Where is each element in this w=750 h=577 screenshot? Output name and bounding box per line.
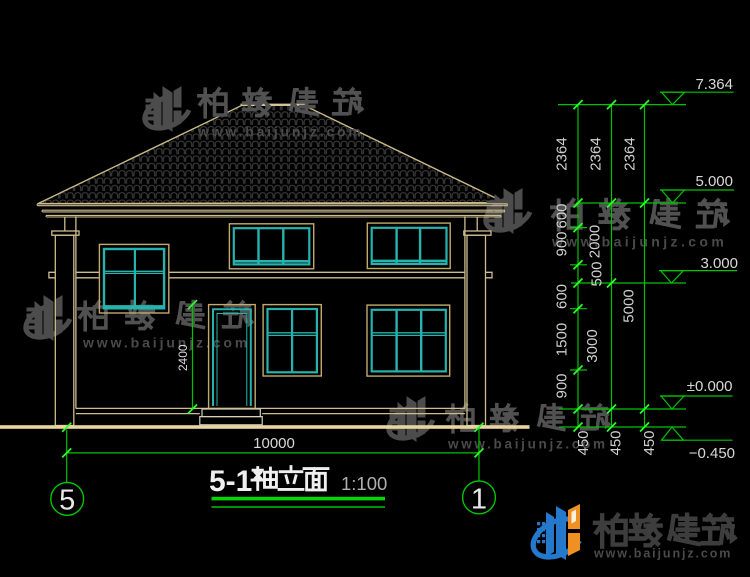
svg-text:1500: 1500 — [554, 323, 571, 356]
svg-text:www.baijunjz.com: www.baijunjz.com — [593, 547, 732, 561]
svg-text:±0.000: ±0.000 — [687, 378, 733, 395]
svg-text:5000: 5000 — [621, 289, 638, 322]
svg-text:2364: 2364 — [554, 137, 571, 170]
svg-text:1:100: 1:100 — [341, 473, 387, 494]
svg-text:450: 450 — [641, 430, 658, 455]
svg-text:2364: 2364 — [622, 137, 639, 170]
svg-text:2364: 2364 — [588, 137, 605, 170]
svg-text:www.baijunjz.com: www.baijunjz.com — [197, 124, 364, 140]
svg-text:600: 600 — [554, 284, 571, 309]
svg-text:3.000: 3.000 — [700, 255, 738, 272]
svg-text:10000: 10000 — [253, 435, 295, 452]
svg-text:2400: 2400 — [176, 344, 190, 371]
svg-text:450: 450 — [608, 430, 625, 455]
svg-text:7.364: 7.364 — [695, 76, 733, 93]
svg-text:−0.450: −0.450 — [689, 445, 735, 462]
svg-text:www.baijunjz.com: www.baijunjz.com — [82, 335, 250, 351]
svg-text:600: 600 — [554, 203, 571, 228]
svg-text:5-1: 5-1 — [209, 465, 252, 498]
svg-text:450: 450 — [575, 430, 592, 455]
svg-text:500: 500 — [589, 261, 606, 286]
svg-text:1: 1 — [471, 484, 487, 516]
svg-text:900: 900 — [554, 231, 571, 256]
svg-text:5: 5 — [59, 485, 75, 517]
svg-text:5.000: 5.000 — [695, 173, 733, 190]
svg-text:2000: 2000 — [587, 225, 604, 258]
svg-text:900: 900 — [554, 373, 571, 398]
svg-text:3000: 3000 — [584, 329, 601, 362]
